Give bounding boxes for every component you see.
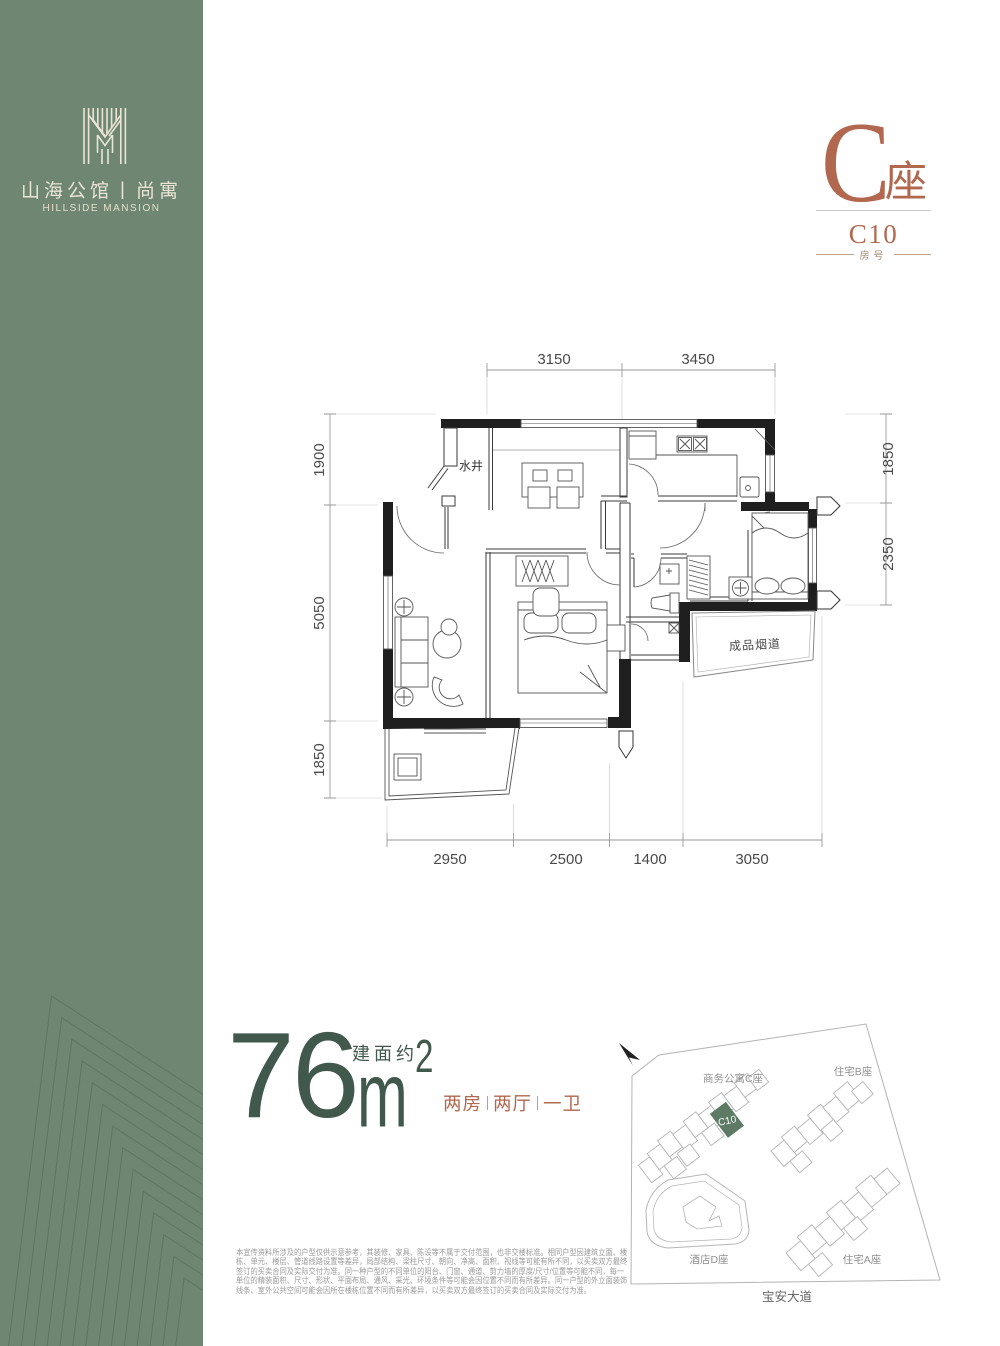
svg-text:2350: 2350 <box>880 537 897 570</box>
svg-text:商务公寓C座: 商务公寓C座 <box>703 1072 763 1085</box>
svg-text:3450: 3450 <box>681 351 714 368</box>
svg-text:1900: 1900 <box>311 443 328 476</box>
svg-text:2950: 2950 <box>433 851 466 868</box>
svg-text:酒店D座: 酒店D座 <box>689 1253 728 1266</box>
svg-text:水井: 水井 <box>459 459 483 473</box>
svg-text:住宅A座: 住宅A座 <box>843 1253 882 1266</box>
svg-text:3150: 3150 <box>537 351 570 368</box>
svg-text:2500: 2500 <box>549 851 582 868</box>
svg-text:1850: 1850 <box>880 442 897 475</box>
svg-text:1850: 1850 <box>311 743 328 776</box>
svg-text:住宅B座: 住宅B座 <box>834 1065 873 1078</box>
svg-text:宝安大道: 宝安大道 <box>762 1289 813 1304</box>
svg-text:3050: 3050 <box>735 851 768 868</box>
svg-text:1400: 1400 <box>633 851 666 868</box>
svg-text:5050: 5050 <box>311 596 328 629</box>
svg-text:成品烟道: 成品烟道 <box>729 637 782 654</box>
